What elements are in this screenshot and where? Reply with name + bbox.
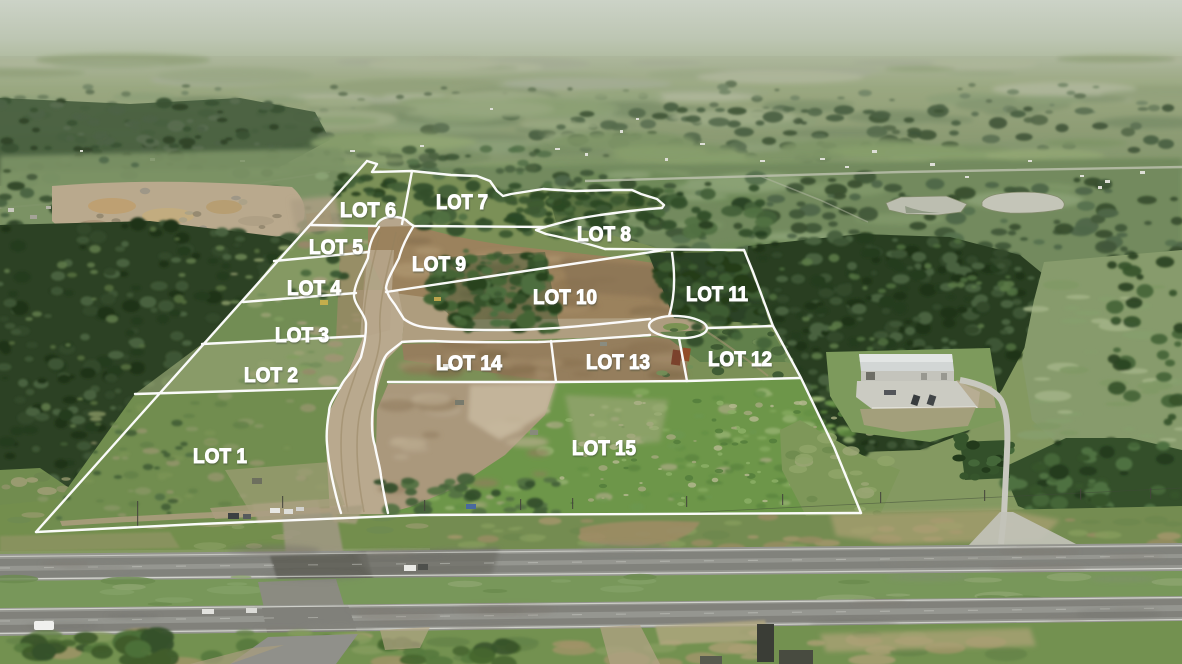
svg-text:LOT 6: LOT 6 [340, 198, 396, 222]
svg-text:LOT 15: LOT 15 [572, 436, 636, 460]
svg-text:LOT 13: LOT 13 [586, 350, 650, 374]
svg-text:LOT 1: LOT 1 [193, 444, 247, 468]
svg-text:LOT 8: LOT 8 [577, 222, 631, 246]
svg-text:LOT 3: LOT 3 [275, 323, 329, 347]
svg-text:LOT 14: LOT 14 [436, 351, 502, 375]
svg-text:LOT 7: LOT 7 [436, 190, 488, 214]
svg-text:LOT 12: LOT 12 [708, 347, 772, 371]
svg-text:LOT 4: LOT 4 [287, 276, 341, 300]
svg-text:LOT 2: LOT 2 [244, 363, 298, 387]
svg-text:LOT 5: LOT 5 [309, 235, 363, 259]
svg-text:LOT 9: LOT 9 [412, 252, 466, 276]
svg-text:LOT 10: LOT 10 [533, 285, 597, 309]
svg-text:LOT 11: LOT 11 [686, 282, 748, 306]
